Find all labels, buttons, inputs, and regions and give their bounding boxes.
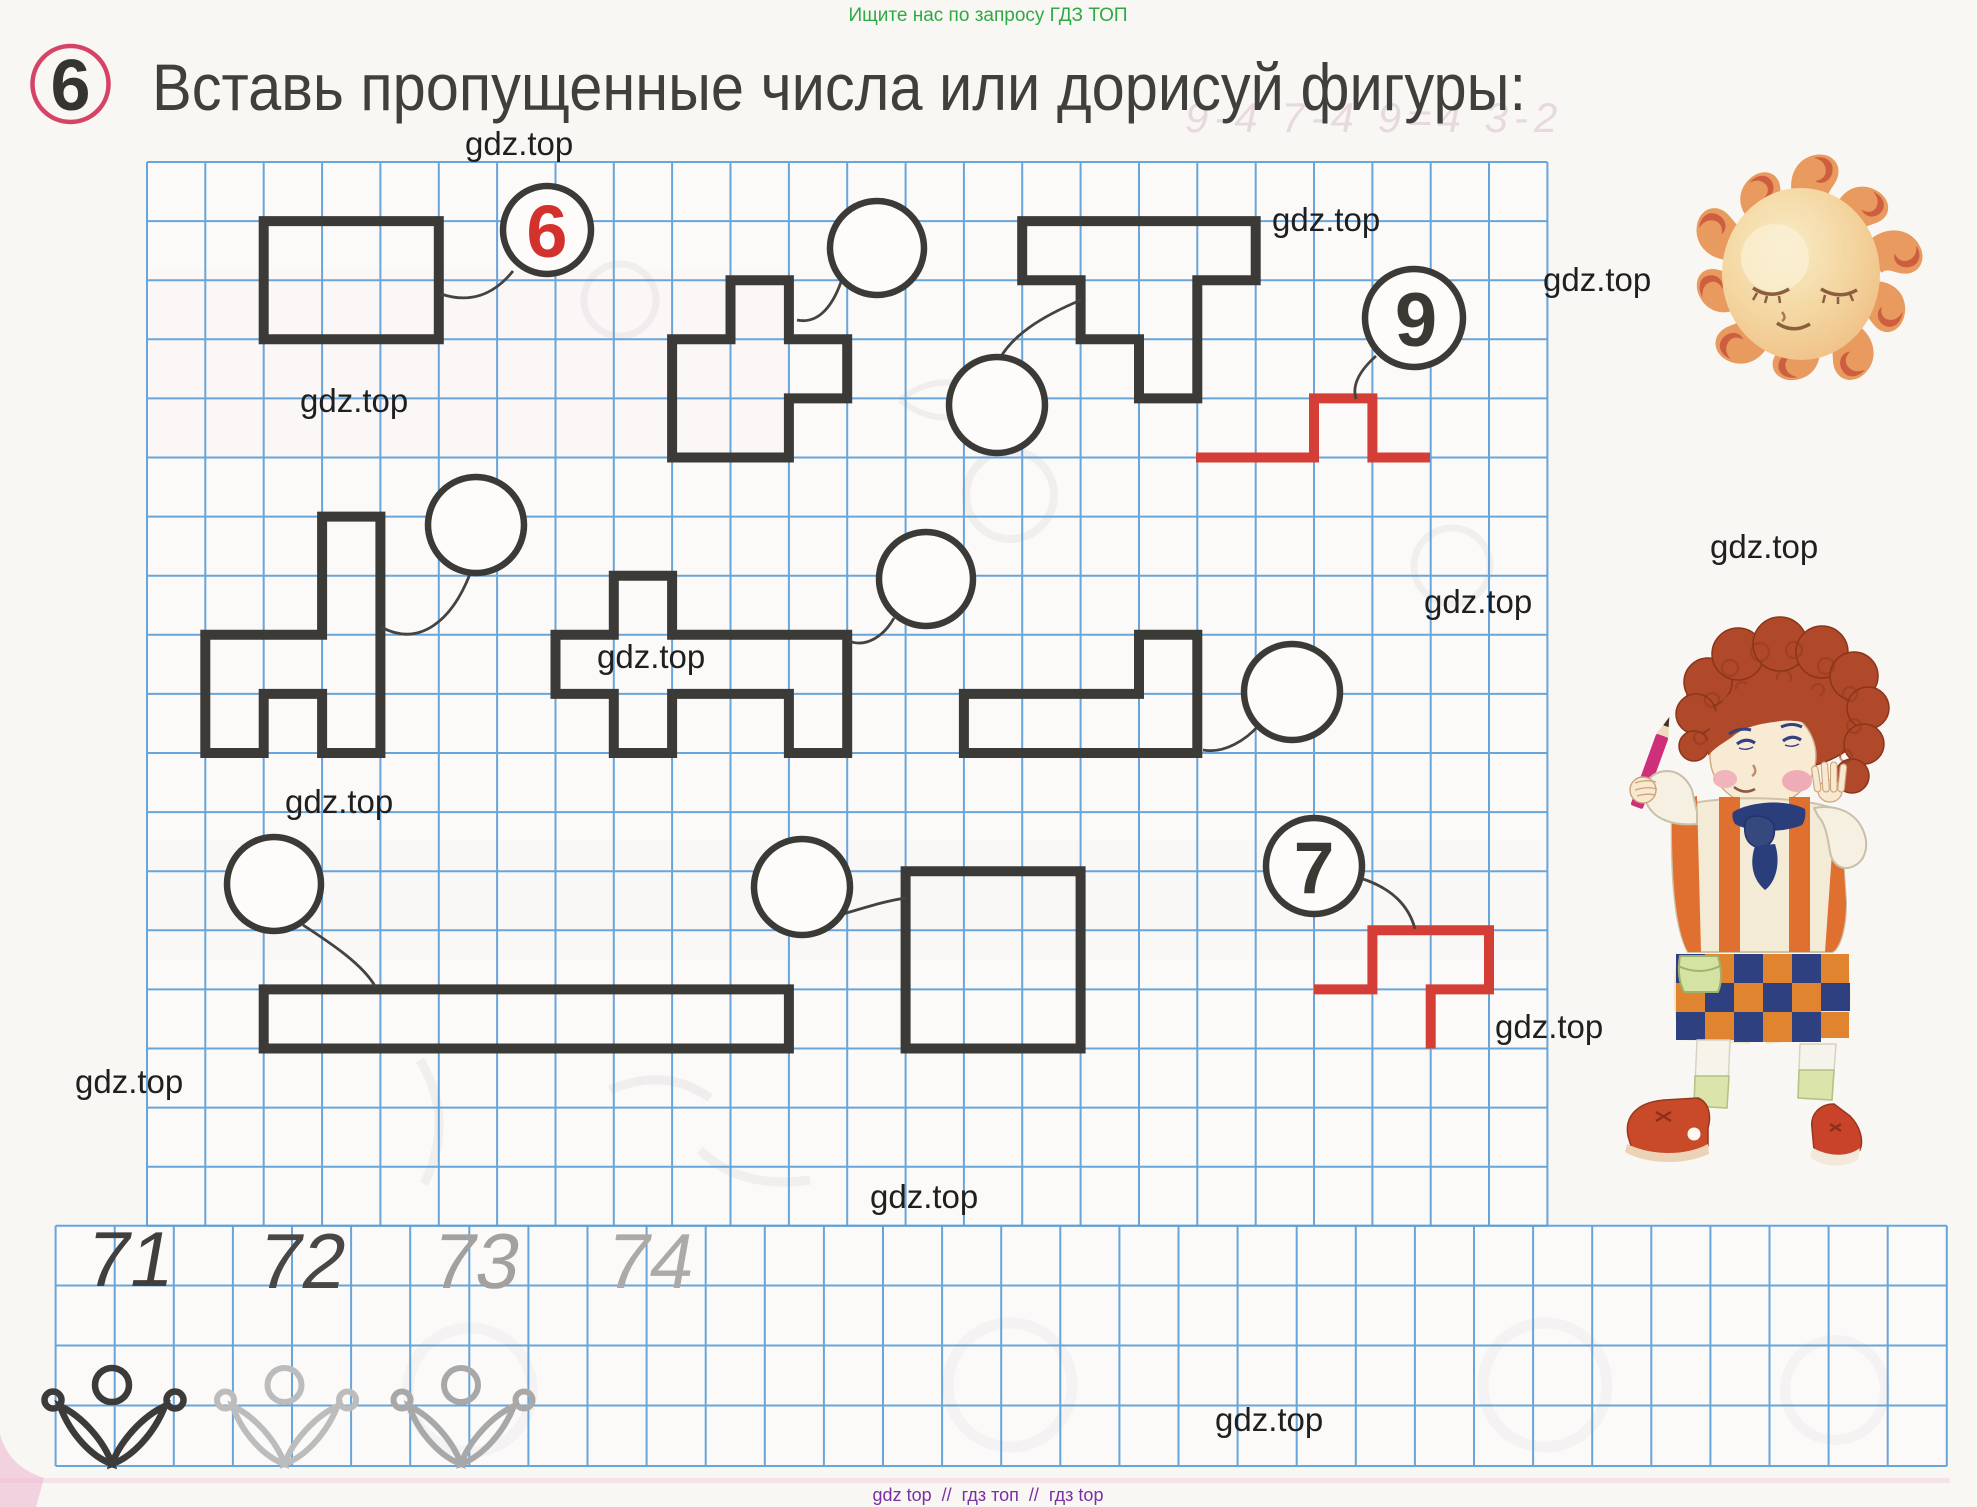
- svg-text:gdz top // гдз топ // гдз: gdz top // гдз топ // гдз top: [873, 1485, 1104, 1505]
- svg-text:Ищите нас по запросу ГДЗ ТОП: Ищите нас по запросу ГДЗ ТОП: [848, 5, 1127, 26]
- svg-text:Вставь пропущенные числа или д: Вставь пропущенные числа или дорисуй фиг…: [152, 50, 1526, 124]
- svg-text:7: 7: [1294, 828, 1335, 909]
- svg-text:gdz.top: gdz.top: [597, 638, 705, 675]
- svg-text:6: 6: [526, 190, 567, 273]
- svg-text:gdz.top: gdz.top: [1495, 1008, 1603, 1045]
- svg-text:gdz.top: gdz.top: [1215, 1401, 1323, 1438]
- svg-text:72: 72: [252, 1218, 354, 1305]
- svg-text:gdz.top: gdz.top: [1424, 583, 1532, 620]
- svg-text:gdz.top: gdz.top: [1543, 261, 1651, 298]
- svg-text:gdz.top: gdz.top: [870, 1178, 978, 1215]
- svg-text:gdz.top: gdz.top: [285, 783, 393, 820]
- svg-text:71: 71: [80, 1216, 182, 1303]
- svg-text:gdz.top: gdz.top: [75, 1063, 183, 1100]
- svg-text:6: 6: [50, 46, 90, 126]
- svg-text:73: 73: [426, 1218, 528, 1305]
- svg-text:gdz.top: gdz.top: [1272, 201, 1380, 238]
- svg-text:gdz.top: gdz.top: [300, 382, 408, 419]
- svg-text:9: 9: [1395, 278, 1437, 363]
- svg-text:gdz.top: gdz.top: [1710, 528, 1818, 565]
- svg-text:gdz.top: gdz.top: [465, 125, 573, 162]
- svg-text:74: 74: [600, 1218, 702, 1305]
